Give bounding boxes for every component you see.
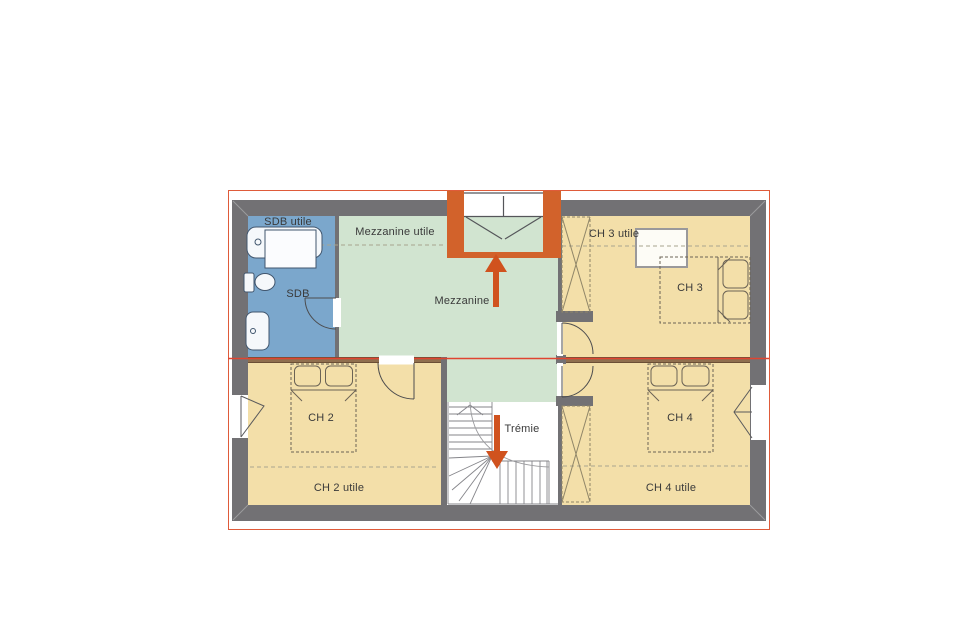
shower-screen bbox=[265, 230, 316, 268]
toilet-tank bbox=[244, 273, 254, 292]
toilet-bowl bbox=[255, 274, 275, 291]
label-ch3: CH 3 bbox=[677, 282, 703, 294]
sink bbox=[246, 312, 269, 350]
door-ch4 bbox=[562, 366, 593, 397]
label-tremie: Trémie bbox=[504, 423, 539, 435]
plan-linework bbox=[0, 0, 960, 618]
doorway-ch2-gap bbox=[379, 356, 414, 365]
door-ch2 bbox=[378, 363, 414, 399]
label-ch3-utile: CH 3 utile bbox=[589, 228, 639, 240]
entry-door-leaves bbox=[464, 193, 543, 239]
floor-plan: SDB utile Mezzanine utile CH 3 utile SDB… bbox=[0, 0, 960, 618]
window-swing-ch2 bbox=[241, 396, 264, 437]
closet-hatch-top bbox=[562, 217, 590, 312]
bathroom-fixtures bbox=[244, 227, 322, 350]
label-ch4: CH 4 bbox=[667, 412, 693, 424]
closet-hatch-bottom bbox=[562, 406, 590, 502]
label-ch2-utile: CH 2 utile bbox=[314, 482, 364, 494]
label-ch2: CH 2 bbox=[308, 412, 334, 424]
door-sdb bbox=[305, 298, 336, 329]
label-sdb-utile: SDB utile bbox=[264, 216, 312, 228]
bed-ch3 bbox=[660, 257, 750, 323]
label-ch4-utile: CH 4 utile bbox=[646, 482, 696, 494]
window-swing-ch4 bbox=[734, 387, 752, 438]
door-ch3 bbox=[562, 323, 593, 354]
bed-ch2 bbox=[291, 364, 356, 452]
label-mezzanine-utile: Mezzanine utile bbox=[355, 226, 434, 238]
label-sdb: SDB bbox=[286, 288, 309, 300]
label-mezzanine: Mezzanine bbox=[435, 295, 490, 307]
bed-ch4 bbox=[648, 364, 713, 452]
